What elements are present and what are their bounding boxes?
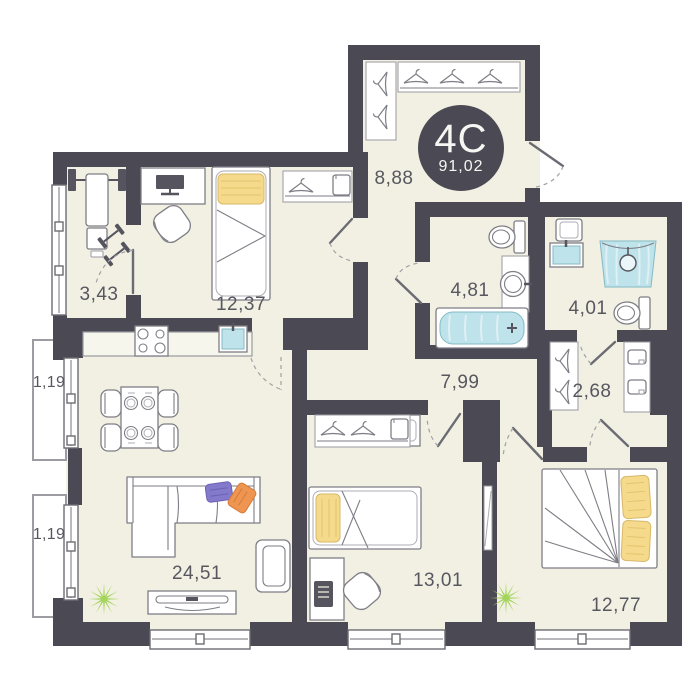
wardrobe-rail: [283, 171, 352, 202]
tv-stand: [148, 591, 236, 614]
hall-shelf-hangers: [398, 62, 520, 92]
single-bed: [212, 167, 270, 300]
hall-wardrobe-vertical: [366, 62, 396, 140]
floor-plan-page: 4C 91,02 3,43 12,37 8,88 4,81 4,01 7,99 …: [0, 0, 700, 700]
desk-with-monitor: [141, 168, 205, 204]
floor-plan: 4C 91,02 3,43 12,37 8,88 4,81 4,01 7,99 …: [0, 0, 700, 700]
label-hall: 8,88: [375, 168, 414, 189]
shower-icon: [600, 241, 656, 287]
dining-table: [121, 387, 158, 448]
label-bedroom3: 12,77: [591, 595, 641, 616]
label-bedroom2: 13,01: [413, 570, 463, 591]
washbasin-icon: [550, 240, 583, 267]
wardrobe-shelf: [315, 415, 410, 447]
gym-window: [52, 185, 66, 315]
shelf-unit: [624, 342, 650, 412]
unit-type-label: 4C: [434, 117, 487, 161]
label-shower: 4,01: [569, 298, 608, 319]
storage-box-icon: [333, 175, 350, 195]
unit-badge: 4C 91,02: [418, 105, 504, 191]
balcony-door-1: [64, 358, 78, 448]
living-window: [150, 630, 250, 649]
pillow: [621, 520, 651, 561]
armchair: [256, 540, 290, 592]
wall-mirror: [484, 486, 492, 550]
label-bedroom1: 12,37: [216, 294, 266, 315]
desk-with-laptop: [310, 558, 344, 620]
storage-box-icon: [391, 419, 408, 439]
bathtub-icon: [436, 308, 528, 348]
label-gym: 3,43: [80, 284, 119, 305]
label-bath: 4,81: [451, 280, 490, 301]
single-bed: [309, 487, 421, 549]
double-bed: [542, 469, 657, 568]
mirror-cabinet-icon: [556, 219, 582, 241]
bedroom2-window: [348, 630, 445, 649]
label-balcony2: 1,19: [33, 526, 65, 543]
pillow: [621, 475, 652, 519]
balcony-door-2: [64, 505, 78, 600]
label-wardrobe: 2,68: [573, 381, 612, 402]
pillow: [218, 174, 264, 204]
bedroom3-window: [535, 630, 630, 649]
kitchen-sink-icon: [219, 323, 247, 352]
label-living: 24,51: [172, 563, 222, 584]
stove-icon: [135, 326, 168, 356]
unit-total-area: 91,02: [438, 158, 483, 175]
label-corridor: 7,99: [441, 372, 480, 393]
label-balcony1: 1,19: [33, 374, 65, 391]
